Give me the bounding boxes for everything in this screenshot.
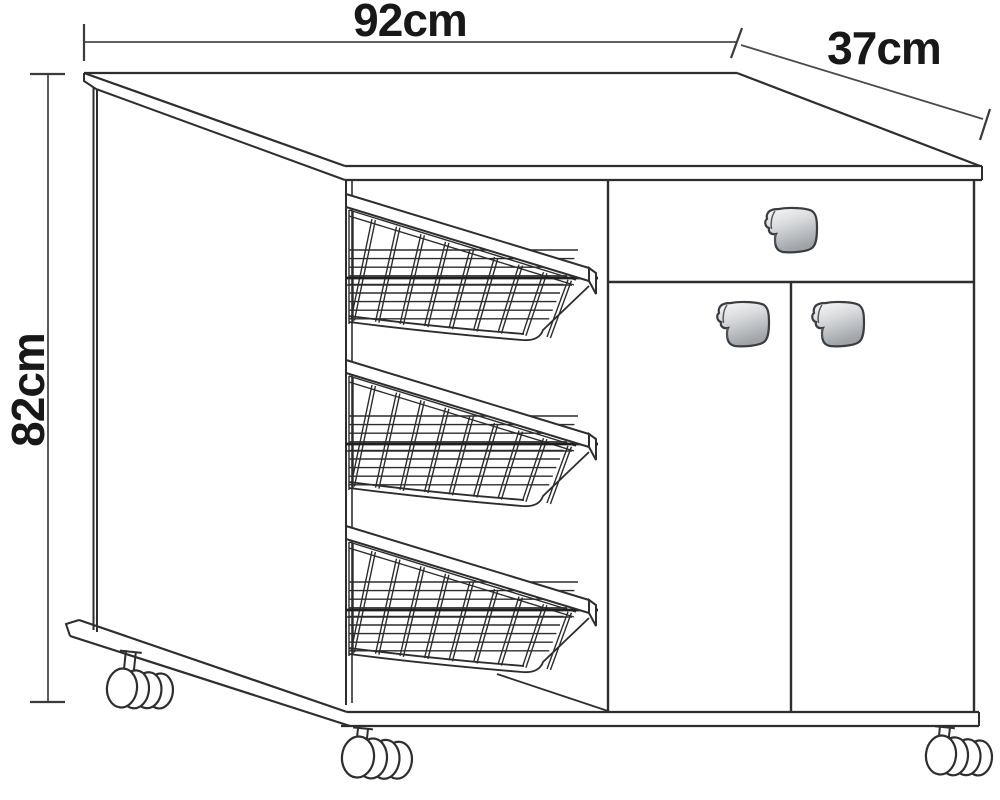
wire-basket-2[interactable] xyxy=(346,360,598,506)
right-door-handle[interactable] xyxy=(812,302,864,346)
wire-basket-1[interactable] xyxy=(346,194,598,340)
depth-dimension-label: 37cm xyxy=(827,22,941,74)
width-dimension-label: 92cm xyxy=(353,0,467,46)
left-door-handle[interactable] xyxy=(717,302,769,346)
side-panel xyxy=(66,87,350,726)
drawer-handle[interactable] xyxy=(765,208,817,252)
wire-basket-3[interactable] xyxy=(346,526,598,672)
cabinet-diagram-svg: 92cm 37cm 82cm xyxy=(0,0,1000,800)
front-frame xyxy=(341,181,979,726)
dimension-width: 92cm xyxy=(84,0,742,61)
caster-middle xyxy=(340,726,415,783)
cabinet-top xyxy=(84,73,982,180)
dimension-height: 82cm xyxy=(2,74,65,702)
height-dimension-label: 82cm xyxy=(2,333,54,447)
caster-right xyxy=(924,726,995,780)
furniture-dimension-diagram: 92cm 37cm 82cm xyxy=(0,0,1000,800)
